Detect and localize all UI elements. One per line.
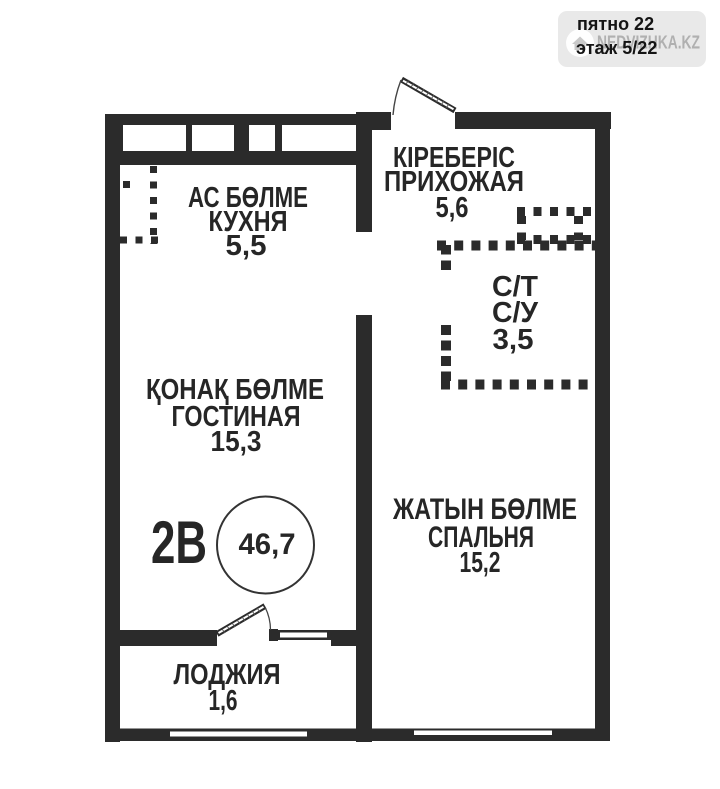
svg-text:5,5: 5,5 xyxy=(226,230,267,262)
svg-text:2В: 2В xyxy=(151,509,207,576)
svg-text:15,3: 15,3 xyxy=(211,426,262,458)
svg-text:5,6: 5,6 xyxy=(436,192,469,224)
svg-text:15,2: 15,2 xyxy=(460,547,501,579)
svg-text:46,7: 46,7 xyxy=(239,528,296,561)
svg-text:1,6: 1,6 xyxy=(209,685,238,717)
svg-text:3,5: 3,5 xyxy=(493,324,534,356)
